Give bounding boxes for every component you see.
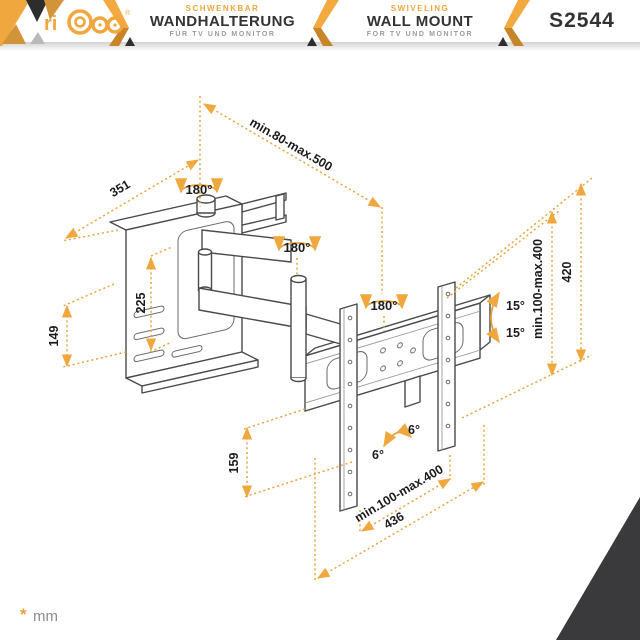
- plate-spacer-tab: [405, 376, 420, 407]
- label-swivel-wall: 180°: [186, 182, 213, 197]
- logo-ring-c-inner: [76, 18, 85, 27]
- asterisk: *: [20, 605, 27, 624]
- label-swivel-tv: 180°: [371, 298, 398, 313]
- label-level-right: 6°: [408, 423, 420, 437]
- dim-bracket-width: 436: [381, 509, 406, 532]
- label-tilt-down: 15°: [506, 326, 525, 340]
- dim-bracket-height: 420: [560, 262, 574, 283]
- vesa-rail-right: [438, 282, 455, 451]
- dim-arm-extension: min.80-max.500: [247, 115, 335, 174]
- subtitle-de: FÜR TV UND MONITOR: [140, 30, 305, 40]
- title-en: WALL MOUNT: [345, 14, 495, 30]
- dim-wall-plate-width: 351: [107, 177, 132, 200]
- logo-ring-c-outer: [69, 11, 91, 33]
- chevron-ribbon-icon: [494, 0, 534, 46]
- tilt-arrow: [491, 293, 499, 342]
- dim-bracket-depth: 159: [227, 453, 241, 474]
- label-level-left: 6°: [372, 448, 384, 462]
- level-arrow: [384, 432, 411, 446]
- vesa-rail-left: [340, 304, 357, 511]
- subtitle-en: FOR TV UND MONITOR: [345, 30, 495, 40]
- technical-drawing: 351 min.80-max.500 225 149 min.100-max.4…: [0, 0, 640, 640]
- dim-wall-plate-slot-height: 225: [134, 293, 148, 314]
- arm-forearm: [306, 314, 344, 345]
- title-de: WANDHALTERUNG: [140, 14, 305, 30]
- elbow-post: [291, 279, 306, 378]
- tv-bracket: [305, 282, 490, 511]
- dim-vesa-vertical: min.100-max.400: [531, 239, 545, 339]
- header-section-german: SCHWENKBAR WANDHALTERUNG FÜR TV UND MONI…: [140, 3, 305, 40]
- label-tilt-up: 15°: [506, 299, 525, 313]
- unit-note: * mm: [20, 605, 58, 625]
- ricoo-logo: ri ®: [44, 4, 140, 40]
- unit-label: mm: [33, 608, 58, 625]
- model-number: S2544: [532, 9, 632, 33]
- logo-text-ri: ri: [44, 13, 57, 35]
- header-section-english: SWIVELING WALL MOUNT FOR TV UND MONITOR: [345, 3, 495, 40]
- label-swivel-arm: 180°: [284, 240, 311, 255]
- registered-mark: ®: [125, 9, 131, 17]
- dim-wall-plate-height: 149: [47, 326, 61, 347]
- chevron-ribbon-icon: [303, 0, 343, 46]
- corner-triangle: [556, 497, 640, 640]
